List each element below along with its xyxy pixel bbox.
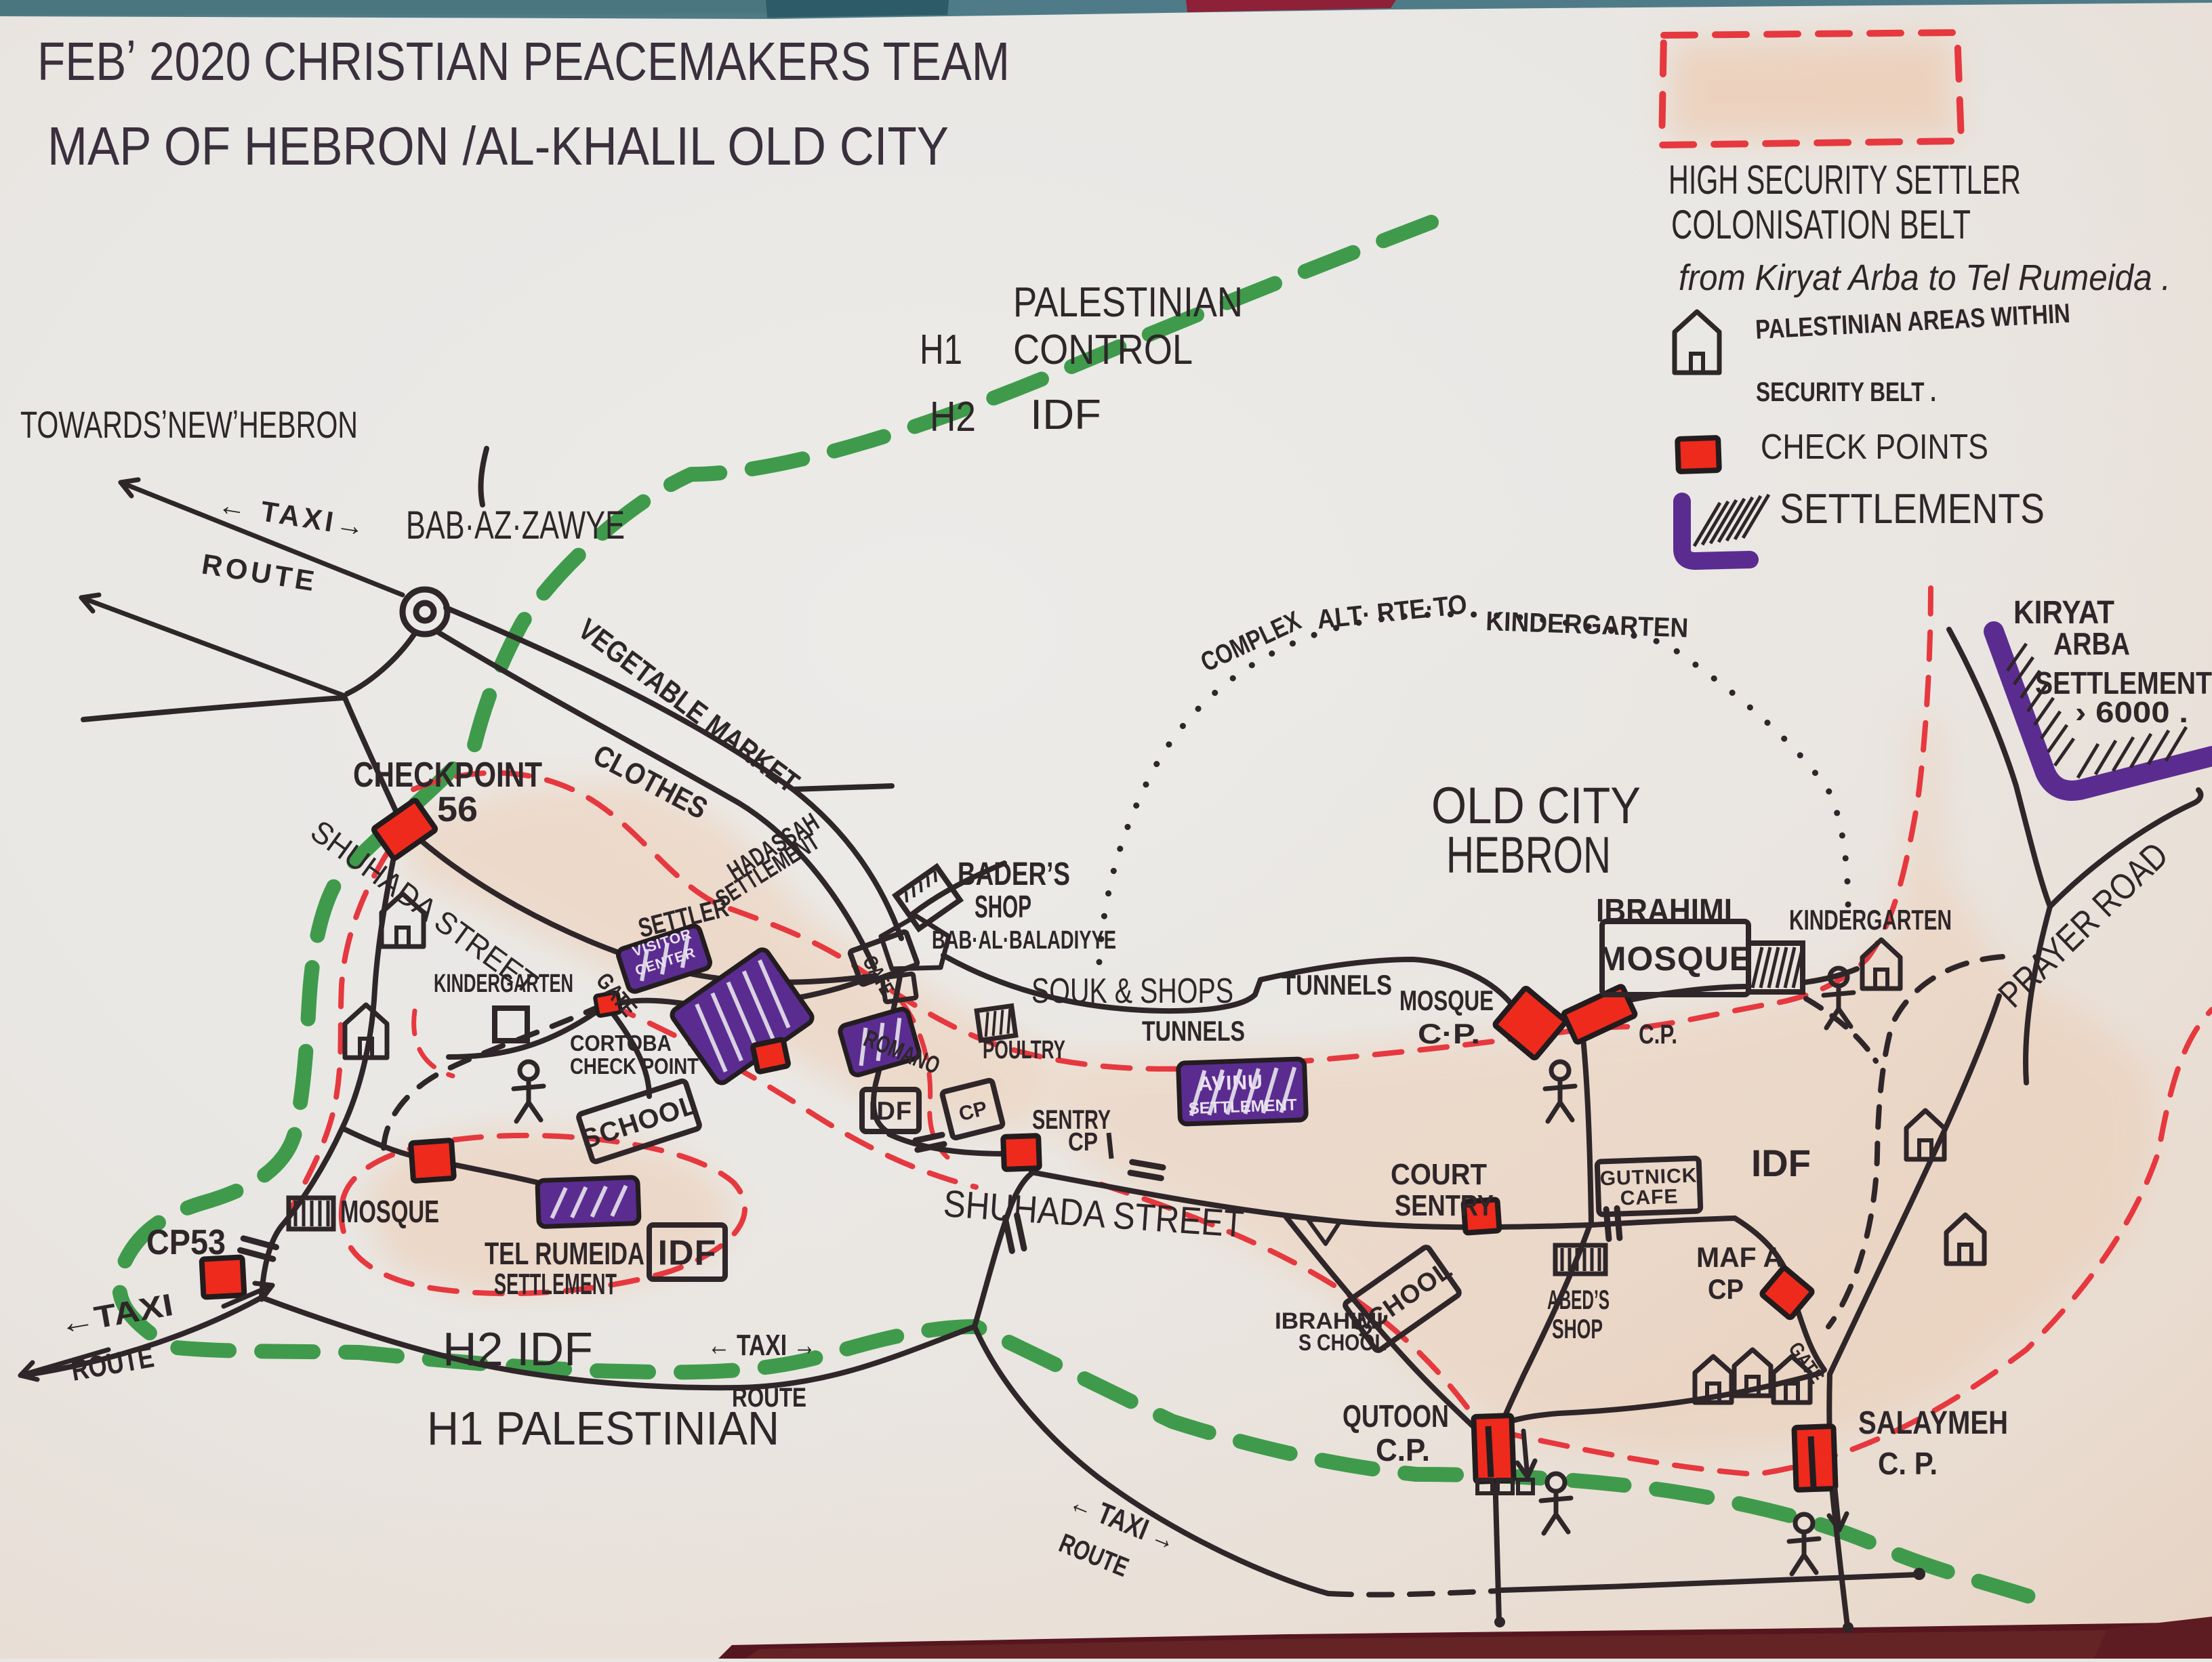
svg-text:COLONISATION BELT: COLONISATION BELT [1671,202,1971,247]
svg-text:IDF: IDF [1751,1142,1811,1184]
svg-text:SETTLEMENT: SETTLEMENT [1188,1096,1297,1118]
svg-text:H1 PALESTINIAN: H1 PALESTINIAN [427,1402,779,1455]
svg-text:IDF: IDF [1030,392,1101,438]
svg-text:SETTLEMENT: SETTLEMENT [494,1268,617,1301]
svg-text:TEL RUMEIDA: TEL RUMEIDA [485,1236,644,1271]
svg-text:H1: H1 [920,327,962,373]
svg-text:TUNNELS: TUNNELS [1282,969,1392,1001]
svg-text:CAFE: CAFE [1620,1186,1679,1210]
svg-text:CONTROL: CONTROL [1013,327,1193,373]
svg-text:CHECKPOINT: CHECKPOINT [353,755,542,795]
svg-text:COURT: COURT [1391,1158,1487,1191]
svg-text:SOUK & SHOPS: SOUK & SHOPS [1031,972,1233,1011]
svg-text:KINDERGARTEN: KINDERGARTEN [1789,904,1952,936]
svg-text:CHECK POINTS: CHECK POINTS [1761,428,1988,467]
svg-text:ABEDʼS: ABEDʼS [1547,1285,1610,1315]
svg-text:IDF: IDF [869,1098,912,1126]
svg-text:BADERʼS: BADERʼS [958,856,1070,892]
svg-text:ARBA: ARBA [2053,626,2130,661]
svg-text:H2: H2 [930,394,976,440]
svg-text:SHOP: SHOP [1552,1314,1603,1344]
svg-text:MOSQUE: MOSQUE [1598,940,1753,978]
svg-text:← TAXI →: ← TAXI → [708,1329,816,1362]
svg-text:PALESTINIAN: PALESTINIAN [1013,279,1243,326]
svg-text:SETTLEMENTS: SETTLEMENTS [1780,486,2045,533]
svg-text:KINDERGARTEN: KINDERGARTEN [434,970,573,998]
svg-text:CHECK POINT: CHECK POINT [570,1054,699,1079]
svg-text:MAP OF HEBRON /AL-KHALIL OLD: MAP OF HEBRON /AL-KHALIL OLD CITY [47,116,949,176]
svg-text:MOSQUE: MOSQUE [1399,984,1494,1016]
svg-text:CP: CP [1068,1128,1098,1157]
svg-text:C.P.: C.P. [1639,1020,1677,1050]
svg-text:MOSQUE: MOSQUE [340,1194,439,1229]
svg-text:BAB·AZ·ZAWYE: BAB·AZ·ZAWYE [406,503,625,547]
svg-text:FEBʼ 2020 CHRISTIAN PEACEMAKE: FEBʼ 2020 CHRISTIAN PEACEMAKERS TEAM [37,31,1010,91]
svg-text:CP: CP [1708,1273,1744,1305]
svg-text:S CHOOL: S CHOOL [1298,1330,1387,1356]
svg-text:POULTRY: POULTRY [983,1036,1065,1064]
svg-text:SENTRY: SENTRY [1395,1189,1494,1222]
svg-text:AVINU: AVINU [1197,1071,1263,1096]
svg-text:QUTOON: QUTOON [1343,1398,1449,1434]
svg-text:› 6000 .: › 6000 . [2075,696,2188,729]
svg-text:BAB·AL·BALADIYYE: BAB·AL·BALADIYYE [932,926,1116,955]
svg-text:C·P.: C·P. [1418,1018,1480,1050]
svg-text:SECURITY BELT .: SECURITY BELT . [1756,377,1936,407]
svg-text:HIGH SECURITY SETTLER: HIGH SECURITY SETTLER [1668,157,2021,203]
svg-text:IBRAHIMI: IBRAHIMI [1596,893,1732,929]
svg-text:CORTOBA: CORTOBA [570,1031,672,1056]
svg-text:56: 56 [437,790,478,829]
svg-text:C.P.: C.P. [1376,1432,1430,1468]
svg-text:H2 IDF: H2 IDF [443,1323,593,1375]
svg-text:ROUTE: ROUTE [732,1383,806,1413]
svg-text:HEBRON: HEBRON [1446,827,1611,884]
svg-text:SHOP: SHOP [975,889,1031,924]
svg-text:CP53: CP53 [146,1223,226,1262]
svg-text:MAF A: MAF A [1696,1241,1783,1273]
svg-text:TOWARDSʼNEWʼHEBRON: TOWARDSʼNEWʼHEBRON [20,403,358,446]
svg-text:SALAYMEH: SALAYMEH [1858,1405,2008,1441]
svg-text:IDF: IDF [658,1234,717,1273]
svg-text:C. P.: C. P. [1878,1446,1938,1481]
svg-text:TUNNELS: TUNNELS [1142,1015,1245,1047]
svg-text:from Kiryat Arba to Tel Rumeid: from Kiryat Arba to Tel Rumeida . [1679,257,2171,298]
